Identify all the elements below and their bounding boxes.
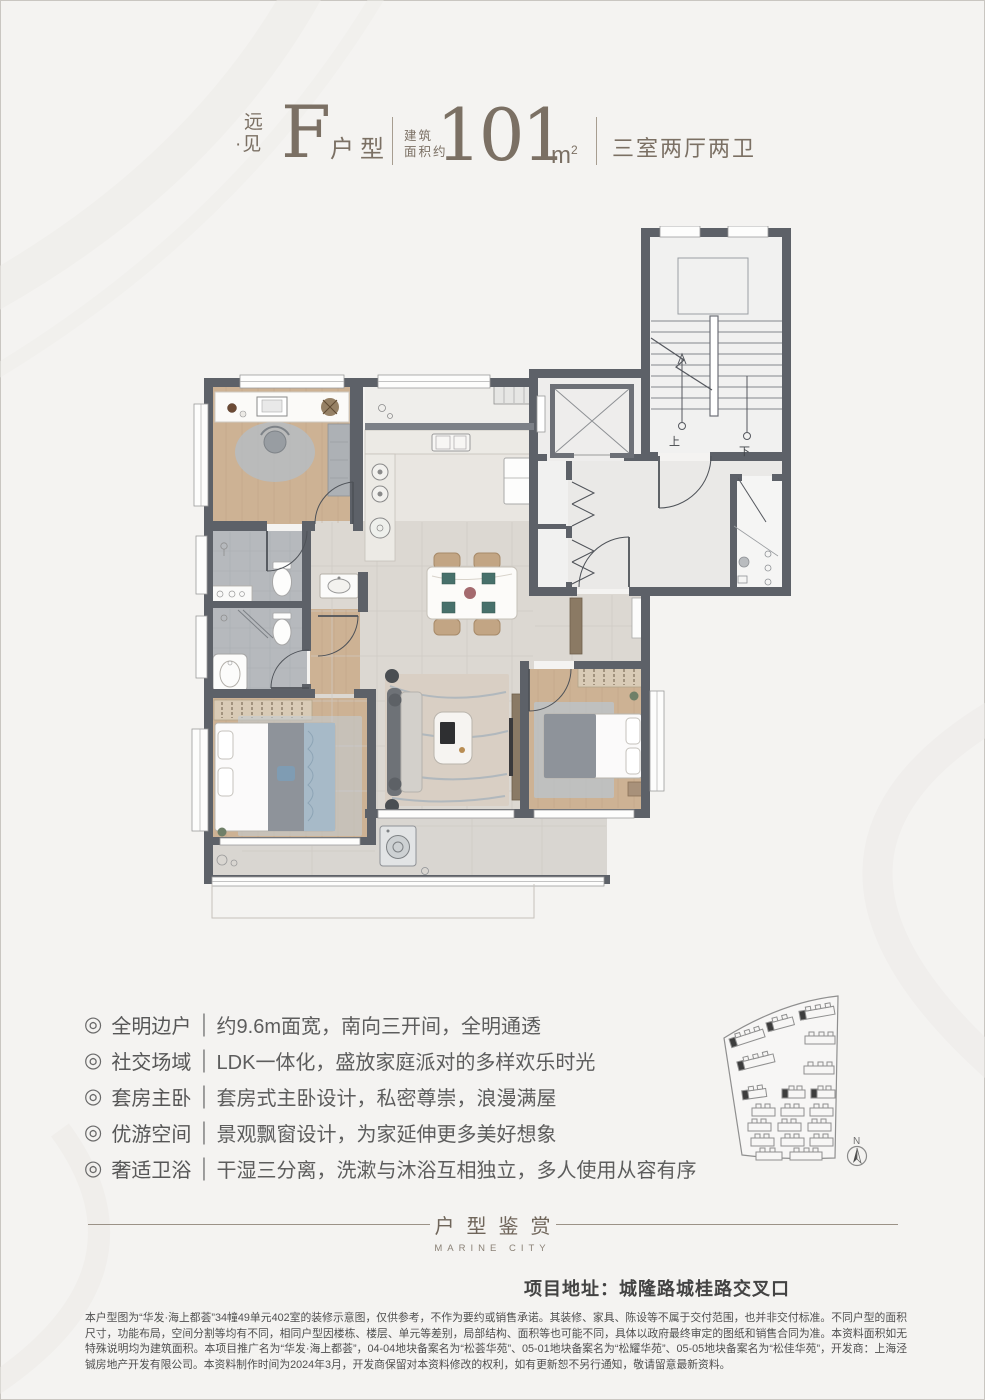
placemat [482,602,495,613]
stairs-up-label: 上 [669,435,680,448]
foyer-cabinet [570,598,582,654]
area-unit: m2 [551,142,578,170]
wash-basin [328,579,350,593]
plant [385,669,399,683]
rooms-summary: 三室两厅两卫 [612,131,756,163]
feature-row: ◎优游空间|景观飘窗设计，为家延伸更多美好想象 [84,1114,697,1150]
plant [218,828,227,837]
dining-chair [474,619,500,635]
pillow [218,731,233,759]
bullet-icon: ◎ [84,1084,102,1109]
plan-suffix: 户型 [330,129,390,164]
project-address: 项目地址：城隆路城桂路交叉口 [0,1275,790,1301]
pillow [626,748,640,774]
toilet [273,568,292,596]
header-divider-1 [392,117,393,165]
pillow [626,718,640,744]
placemat [442,602,455,613]
bullet-icon: ◎ [84,1048,102,1073]
bathtub [213,654,247,692]
feature-list: ◎全明边户|约9.6m面宽，南向三开间，全明通透 ◎社交场域|LDK一体化，盛放… [84,1006,697,1186]
sink-counter [212,586,252,602]
feature-row: ◎全明边户|约9.6m面宽，南向三开间，全明通透 [84,1006,697,1042]
tv [509,718,513,776]
series-name: 远 ·见 [244,112,264,156]
sofa-pillow [389,694,402,707]
plant [630,692,639,701]
toilet [273,619,291,645]
plan-letter: F [281,96,331,168]
exterior-outline [212,884,534,918]
pillow [218,768,233,796]
section-title: 户型鉴赏 [0,1210,985,1239]
bed-throw [304,723,335,831]
living-room [385,669,523,813]
placemat [482,573,495,584]
kitchen-sink [432,434,470,451]
dining-chair [434,619,460,635]
accent-pillow [277,766,295,781]
fridge [504,458,531,504]
bullet-icon: ◎ [84,1012,102,1037]
feature-row: ◎奢适卫浴|干湿三分离，洗漱与沐浴互相独立，多人使用从容有序 [84,1150,697,1186]
floor-plan: 上 下 [182,226,812,946]
header-divider-2 [596,117,597,165]
svg-text:N: N [853,1136,860,1147]
coffee-cup [228,404,237,413]
sofa-pillow [389,778,402,791]
section-subtitle: MARINE CITY [0,1243,985,1254]
feature-row: ◎社交场域|LDK一体化，盛放家庭派对的多样欢乐时光 [84,1042,697,1078]
site-map: N [702,988,912,1188]
table-flowers [464,587,476,599]
bullet-icon: ◎ [84,1120,102,1145]
desk-chair [264,431,286,453]
feature-row: ◎套房主卧|套房式主卧设计，私密尊崇，浪漫满屋 [84,1078,697,1114]
stairs-down-label: 下 [739,446,750,458]
legal-disclaimer: 本户型图为“华发·海上都荟”34幢49单元402室的装修示意图，仅供参考，不作为… [85,1311,907,1373]
sofa-seat [401,692,422,792]
bed-blanket [544,714,596,778]
prep-sink [370,518,390,538]
bullet-icon: ◎ [84,1156,102,1181]
area-value: 101 [436,99,564,171]
placemat [442,573,455,584]
coffee-tray [440,722,455,744]
poster-page: 远 ·见 F 户型 建筑 面积约 101 m2 三室两厅两卫 [0,0,985,1400]
hall-vanity [320,574,358,598]
compass-north-icon: N [848,1136,867,1166]
